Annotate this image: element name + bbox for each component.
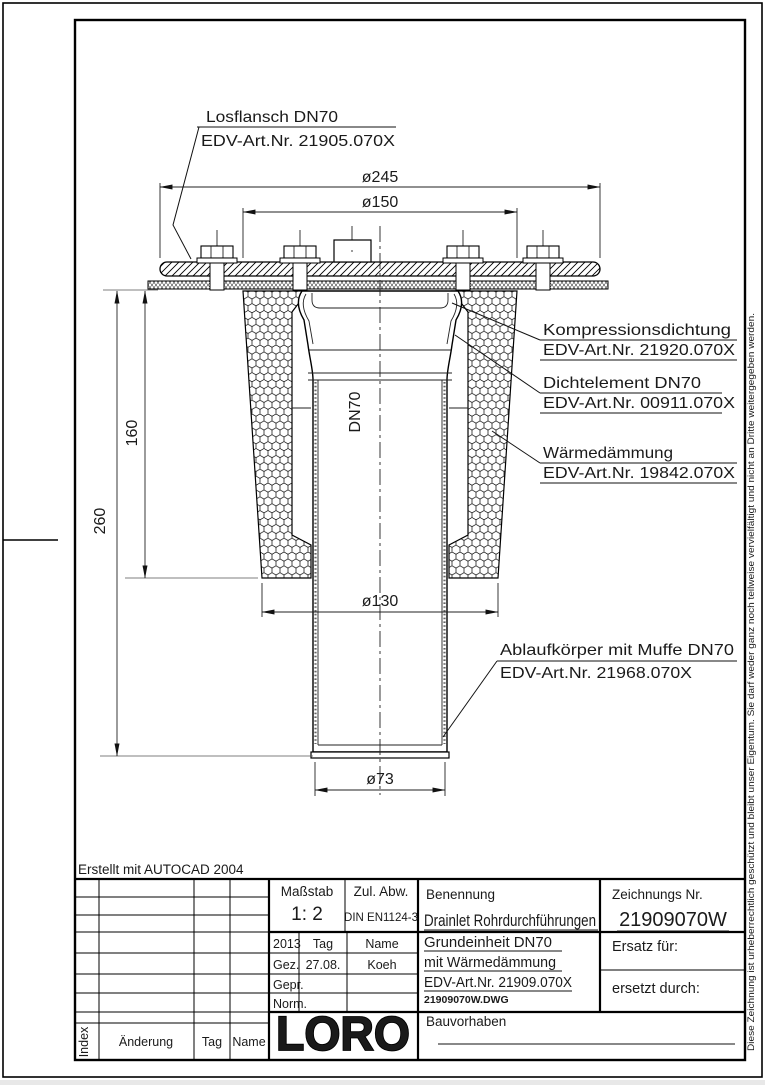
loro-logo: LORO bbox=[276, 1008, 410, 1061]
desc-line1: Grundeinheit DN70 bbox=[424, 935, 552, 951]
bolt-nut bbox=[447, 246, 479, 258]
bolt-shaft bbox=[293, 263, 307, 290]
bolt-nut bbox=[527, 246, 559, 258]
gepr-label: Gepr. bbox=[273, 978, 304, 992]
col-aenderung: Änderung bbox=[119, 1035, 173, 1049]
massstab-value: 1: 2 bbox=[291, 904, 323, 925]
bolt-nut bbox=[284, 246, 316, 258]
label-kompressionsdichtung-art: EDV-Art.Nr. 21920.070X bbox=[543, 342, 735, 359]
label-dichtelement-art: EDV-Art.Nr. 00911.070X bbox=[543, 395, 735, 412]
dim-260: 260 bbox=[92, 508, 109, 535]
bolt-washer bbox=[197, 258, 237, 263]
bauvorhaben-label: Bauvorhaben bbox=[426, 1014, 506, 1029]
gez-name: Koeh bbox=[367, 958, 396, 972]
benennung-value: Drainlet Rohrdurchführungen bbox=[424, 911, 596, 930]
label-ablaufkoerper-art: EDV-Art.Nr. 21968.070X bbox=[500, 665, 692, 682]
desc-line2: mit Wärmedämmung bbox=[424, 955, 556, 971]
dim-73: ø73 bbox=[366, 771, 394, 788]
gez-label: Gez. bbox=[273, 958, 299, 972]
ersetzt-durch-label: ersetzt durch: bbox=[612, 981, 700, 997]
bolt-washer bbox=[523, 258, 563, 263]
massstab-label: Maßstab bbox=[281, 884, 334, 899]
tag-header: Tag bbox=[313, 937, 333, 951]
bolt-washer bbox=[443, 258, 483, 263]
col-index: Index bbox=[77, 1026, 91, 1057]
label-waermedaemmung: Wärmedämmung bbox=[543, 445, 673, 462]
name-header: Name bbox=[365, 937, 398, 951]
label-kompressionsdichtung: Kompressionsdichtung bbox=[543, 322, 731, 339]
created-with-note: Erstellt mit AUTOCAD 2004 bbox=[78, 862, 244, 877]
label-losflansch: Losflansch DN70 bbox=[206, 109, 338, 126]
ersatz-fuer-label: Ersatz für: bbox=[612, 939, 678, 955]
drain-body-outline bbox=[298, 291, 461, 752]
dim-130: ø130 bbox=[362, 593, 399, 610]
bolt-shaft bbox=[456, 263, 470, 290]
label-dichtelement: Dichtelement DN70 bbox=[543, 375, 701, 392]
zeichnungs-nr-label: Zeichnungs Nr. bbox=[612, 887, 703, 902]
col-tag: Tag bbox=[202, 1035, 222, 1049]
dim-160: 160 bbox=[124, 420, 141, 447]
label-losflansch-art: EDV-Art.Nr. 21905.070X bbox=[201, 133, 395, 150]
desc-line3: EDV-Art.Nr. 21909.070X bbox=[424, 975, 572, 991]
zul-abw-label: Zul. Abw. bbox=[354, 884, 409, 899]
file-name: 21909070W.DWG bbox=[424, 994, 509, 1006]
label-ablaufkoerper: Ablaufkörper mit Muffe DN70 bbox=[500, 642, 734, 659]
year-cell: 2013 bbox=[273, 937, 301, 951]
label-waermedaemmung-art: EDV-Art.Nr. 19842.070X bbox=[543, 465, 735, 482]
zul-abw-value: DIN EN1124-3 bbox=[344, 912, 418, 924]
dim-150: ø150 bbox=[362, 194, 399, 211]
bolt-washer bbox=[280, 258, 320, 263]
col-name: Name bbox=[232, 1035, 265, 1049]
drawing-sheet: DN70 bbox=[0, 0, 765, 1080]
dim-245: ø245 bbox=[362, 169, 399, 186]
cad-drawing-svg: DN70 bbox=[0, 0, 765, 1080]
benennung-label: Benennung bbox=[426, 887, 495, 902]
bolt-shaft bbox=[210, 263, 224, 290]
bolt-nut bbox=[201, 246, 233, 258]
dn70-label: DN70 bbox=[347, 391, 364, 432]
copyright-note-vertical: Diese Zeichnung ist urheberrechtlich ges… bbox=[746, 313, 757, 1051]
bolt-shaft bbox=[536, 263, 550, 290]
gez-date: 27.08. bbox=[306, 958, 341, 972]
zeichnungs-nr-value: 21909070W bbox=[619, 909, 727, 931]
